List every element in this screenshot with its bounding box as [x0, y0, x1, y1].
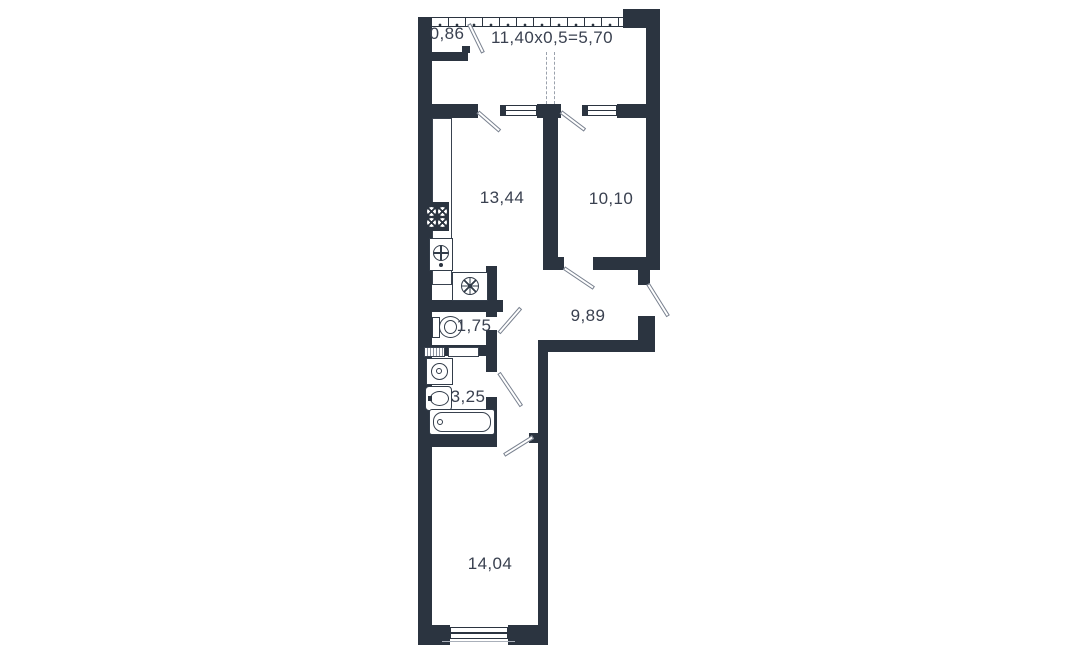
kitchen-sink-bowl — [433, 245, 449, 261]
living-room-window — [450, 627, 508, 639]
washbasin-bowl — [430, 391, 449, 406]
bathroom-door-swing-icon — [497, 372, 523, 407]
living-room-area-label: 14,04 — [468, 554, 513, 574]
bedroom-door-jamb — [543, 257, 564, 270]
closet-door-jamb — [462, 46, 470, 53]
closet-area-label: 0,86 — [430, 24, 465, 44]
fridge-snowflake — [461, 277, 479, 295]
stove-burner — [427, 207, 436, 216]
balcony-wall-left-segment — [432, 104, 478, 118]
kitchen-balcony-door-swing-icon — [477, 110, 502, 132]
bottom-wall-right-segment — [508, 625, 548, 645]
hallway-bottom-wall — [538, 340, 655, 352]
bathtub-drain — [437, 419, 443, 425]
balcony-divider-dashed-line — [546, 52, 555, 104]
stove-burner — [438, 207, 447, 216]
window-sill-line — [442, 641, 515, 642]
bathroom-bottom-wall — [418, 435, 497, 447]
living-room-door-swing-icon — [503, 435, 534, 456]
bottom-wall-left-segment — [418, 625, 450, 645]
sink-drain-dot — [439, 263, 443, 267]
balcony-area-label: 11,40x0,5=5,70 — [491, 28, 613, 48]
closet-wall — [432, 52, 468, 61]
bathroom-area-label: 3,25 — [451, 387, 486, 407]
stove-icon — [424, 202, 449, 231]
toilet-bowl-inner — [444, 320, 457, 334]
hallway-area-label: 9,89 — [571, 306, 606, 326]
kitchen-bottom-wall — [418, 300, 503, 312]
lower-right-outer-wall — [538, 343, 548, 645]
entry-door-swing-icon — [646, 283, 670, 317]
balcony-wall-right-segment — [617, 104, 646, 118]
wall-duct-box — [448, 347, 479, 357]
kitchen-area-label: 13,44 — [480, 188, 525, 208]
bathroom-right-wall-upper — [486, 356, 497, 372]
right-outer-wall — [646, 9, 660, 268]
stove-burner — [427, 218, 436, 227]
washing-machine-drum-inner — [436, 368, 442, 374]
left-outer-wall — [418, 17, 432, 645]
window-end-cap — [582, 106, 588, 115]
bedroom-area-label: 10,10 — [589, 189, 634, 209]
towel-dryer-icon — [424, 347, 445, 357]
washbasin-tap-dot — [428, 396, 432, 401]
wc-area-label: 1,75 — [457, 316, 492, 336]
stove-burner — [438, 218, 447, 227]
kitchen-bedroom-divider-wall — [543, 116, 558, 257]
floor-plan: 0,86 11,40x0,5=5,70 13,44 10,10 9,89 1,7… — [0, 0, 1065, 653]
bedroom-door-swing-icon — [563, 266, 595, 289]
window-end-cap — [500, 106, 506, 115]
